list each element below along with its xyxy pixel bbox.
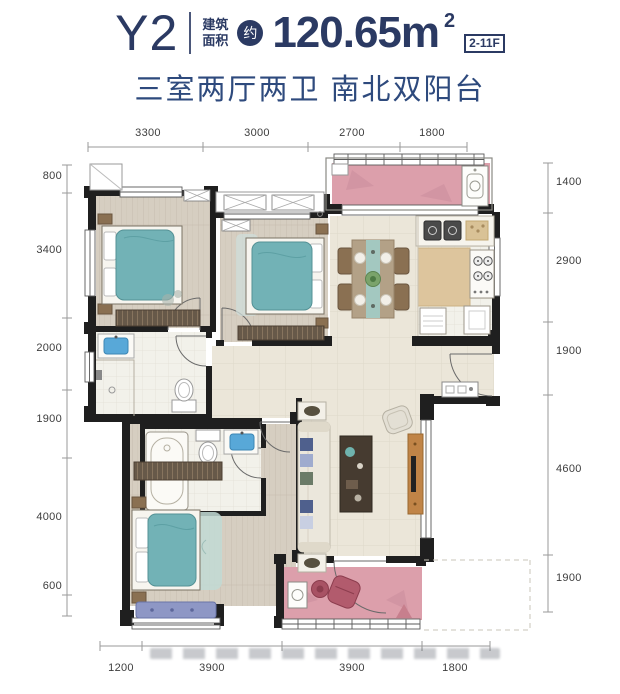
dim-top-2: 3000 (227, 126, 287, 140)
bathroom-sink-icon (98, 334, 134, 358)
kitchen-counter (418, 248, 470, 306)
watermark-artifact (150, 648, 500, 659)
bathroom-1-west-window (85, 352, 94, 382)
wardrobe-icon (116, 310, 200, 326)
shoe-cabinet-icon (442, 382, 478, 397)
bed-icon (132, 510, 200, 590)
bay-window-cushion (136, 602, 216, 618)
dim-left-2: 3400 (16, 243, 62, 257)
washing-machine-icon (288, 582, 307, 608)
bathroom-sink-icon (224, 430, 258, 454)
dim-bottom-1: 1200 (91, 661, 151, 675)
nightstand-icon (132, 497, 146, 508)
adjacent-unit-outline (424, 560, 530, 630)
tv-cabinet-icon (408, 434, 423, 514)
dim-left-4: 1900 (16, 412, 62, 426)
nightstand-icon (98, 304, 112, 314)
bedroom-1-west-window (85, 230, 95, 296)
bedroom-1-north-window (120, 187, 182, 197)
dim-left-3: 2000 (16, 341, 62, 355)
wardrobe-icon (134, 462, 222, 480)
dim-bottom-4: 1800 (425, 661, 485, 675)
north-balcony-railing (334, 154, 484, 165)
dim-left-5: 4000 (16, 510, 62, 524)
coffee-table-icon (340, 436, 372, 512)
nightstand-icon (316, 224, 328, 234)
dim-bottom-3: 3900 (322, 661, 382, 675)
dim-top-1: 3300 (118, 126, 178, 140)
dining-table-icon (352, 240, 394, 318)
dim-right-2: 2900 (556, 254, 602, 268)
dim-right-5: 1900 (556, 571, 602, 585)
stove-icon (470, 250, 494, 298)
floorplan-drawing (0, 0, 620, 694)
dim-right-4: 4600 (556, 462, 602, 476)
bed-icon (246, 238, 324, 314)
sofa-icon (298, 422, 330, 552)
dim-bottom-2: 3900 (182, 661, 242, 675)
floorplan-page: Y2 建筑 面积 约 120.65m 2 2-11F 三室两厅两卫 南北双阳台 (0, 0, 620, 694)
nightstand-icon (132, 592, 146, 603)
washing-machine-icon (462, 166, 488, 206)
nightstand-icon (98, 214, 112, 224)
fridge-icon (420, 308, 446, 334)
master-bay-window (132, 618, 220, 629)
dim-left-1: 800 (16, 169, 62, 183)
dim-left-6: 600 (16, 579, 62, 593)
wardrobe-icon (238, 326, 324, 340)
dim-right-1: 1400 (556, 175, 602, 189)
bed-icon (102, 226, 182, 304)
south-balcony-railing (282, 619, 420, 629)
dim-right-3: 1900 (556, 344, 602, 358)
dim-top-3: 2700 (322, 126, 382, 140)
dim-top-4: 1800 (402, 126, 462, 140)
